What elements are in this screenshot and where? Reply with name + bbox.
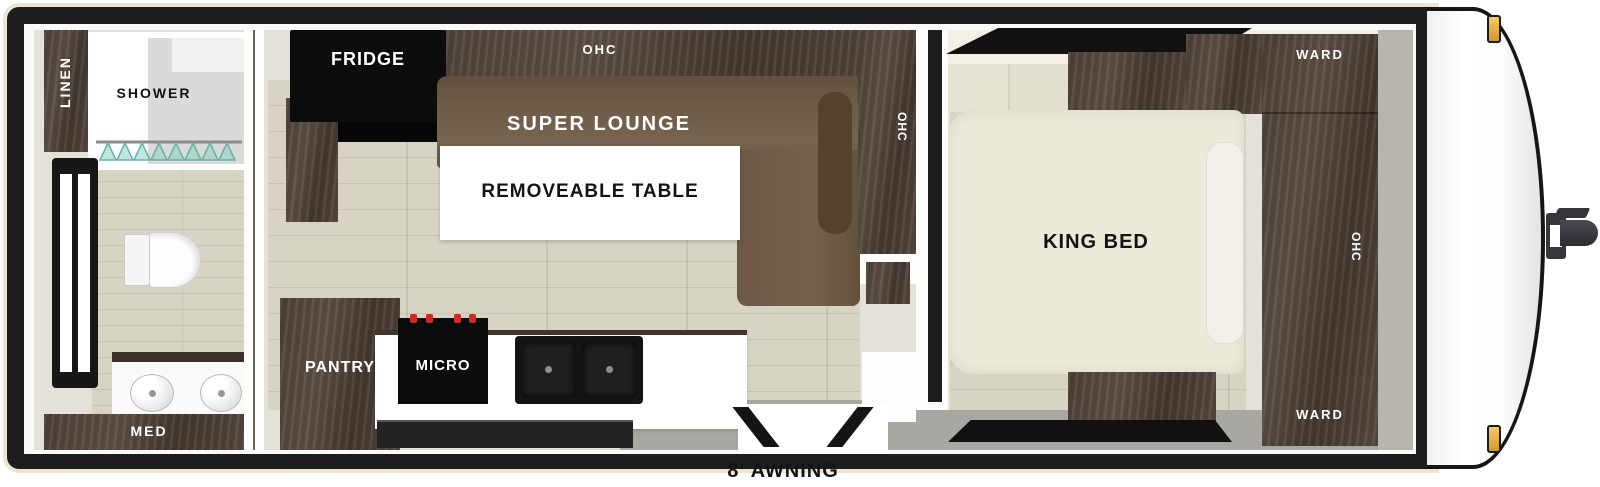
king-bed: KING BED xyxy=(948,110,1244,374)
med-cabinet: MED xyxy=(44,414,250,450)
burner-knob-icon xyxy=(426,314,433,323)
bathroom-living-wall xyxy=(244,30,264,450)
ohc-side-label: OHC xyxy=(896,112,908,142)
burner-knob-icon xyxy=(469,314,476,323)
sink-bowl-icon xyxy=(200,374,242,412)
ohc-top-label: OHC xyxy=(555,43,645,56)
marker-light-bottom-icon xyxy=(1487,425,1501,453)
wardrobe-divider xyxy=(1262,112,1378,114)
fridge-base-shadow xyxy=(338,122,446,142)
floorplan-canvas: LINEN SHOWER MED OHC xyxy=(0,0,1600,487)
med-label: MED xyxy=(84,424,214,438)
sink-bowl-icon xyxy=(130,374,174,412)
nightstand xyxy=(1068,372,1216,428)
burner-knob-icon xyxy=(410,314,417,323)
shower-stall: SHOWER xyxy=(88,32,244,170)
living-bedroom-wall xyxy=(916,30,948,410)
bathroom-window xyxy=(52,158,98,388)
lower-side-cabinet xyxy=(866,262,910,304)
burner-knob-icon xyxy=(454,314,461,323)
shower-label: SHOWER xyxy=(88,86,220,100)
hitch-bar xyxy=(1560,220,1598,246)
front-cap xyxy=(1427,7,1545,469)
ward-bottom-label: WARD xyxy=(1262,408,1378,421)
overhead-cabinet-head xyxy=(1068,52,1190,112)
hitch-fin xyxy=(1554,208,1591,218)
wall-seam xyxy=(253,30,255,450)
double-sink xyxy=(515,336,643,404)
fridge: FRIDGE xyxy=(290,30,446,122)
marker-light-top-icon xyxy=(1487,15,1501,43)
removeable-table-label: REMOVEABLE TABLE xyxy=(440,182,740,201)
linen-cabinet: LINEN xyxy=(44,30,88,152)
toilet-tank xyxy=(124,234,150,286)
counter-kick-strip xyxy=(377,420,633,448)
super-lounge-label: SUPER LOUNGE xyxy=(507,114,691,134)
overhead-cabinet-strip: OHC xyxy=(415,30,916,78)
window-pane xyxy=(78,174,90,372)
lounge-armrest xyxy=(818,92,852,234)
micro-label: MICRO xyxy=(398,358,488,373)
fridge-label: FRIDGE xyxy=(303,50,433,68)
bed-headboard xyxy=(948,64,1070,112)
door-passage-floor xyxy=(916,410,948,450)
wardrobe-column: WARD OHC WARD xyxy=(1262,34,1378,446)
overhead-cabinet-corner xyxy=(1186,34,1262,114)
clothes-rod-with-hangers-icon xyxy=(94,136,244,166)
linen-label: LINEN xyxy=(58,56,72,108)
removable-table: REMOVEABLE TABLE xyxy=(440,146,740,240)
bedroom-bottom-window xyxy=(948,420,1232,442)
window-pane xyxy=(60,174,72,372)
sink-basin-icon xyxy=(521,342,576,398)
ohc-ward-label: OHC xyxy=(1350,232,1362,262)
king-bed-label: KING BED xyxy=(948,232,1244,252)
micro-range: MICRO xyxy=(398,318,488,404)
ward-top-label: WARD xyxy=(1262,48,1378,61)
bedroom-side-wall xyxy=(1378,30,1413,450)
awning-label: 8’ AWNING xyxy=(683,461,883,481)
sink-basin-icon xyxy=(582,342,637,398)
shower-shelf xyxy=(172,38,244,72)
side-overhead-cabinet: OHC xyxy=(858,30,916,254)
pillow xyxy=(1206,142,1244,344)
wall-core xyxy=(928,30,942,402)
